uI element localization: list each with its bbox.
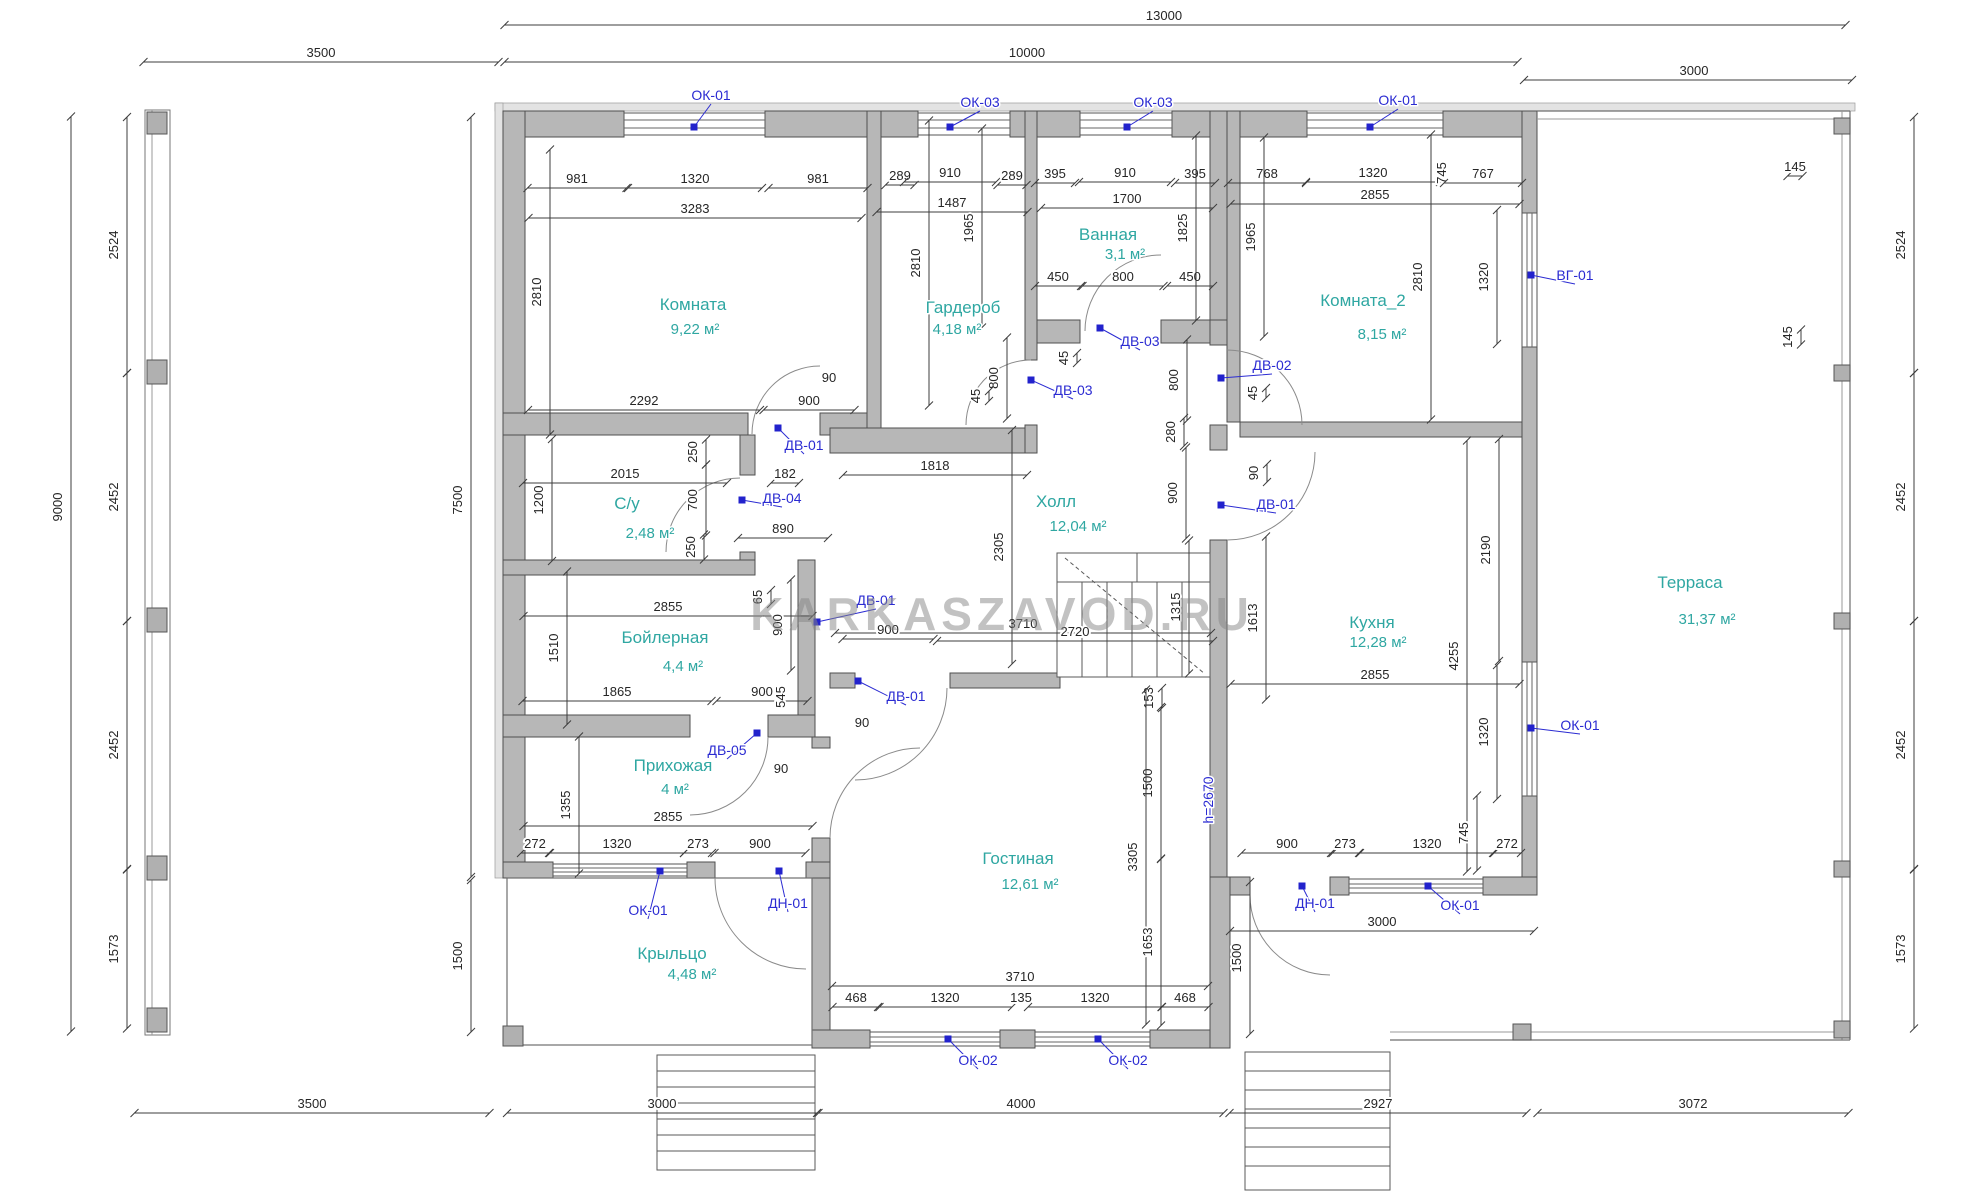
dim-label: 3500 — [298, 1096, 327, 1111]
dim-label: 450 — [1179, 269, 1201, 284]
dim-label: 2927 — [1364, 1096, 1393, 1111]
room-label-Гостиная: Гостиная — [982, 849, 1053, 868]
room-area: 3,1 м² — [1105, 246, 1145, 263]
dim-label: 2452 — [106, 483, 121, 512]
dim-label: 13000 — [1146, 8, 1182, 23]
marker-ДВ-01: ДВ-01 — [784, 437, 823, 453]
terrace-steps — [1245, 1052, 1390, 1190]
dim-label: 3072 — [1679, 1096, 1708, 1111]
window-ok02-1 — [870, 1032, 1000, 1046]
dim-label: 272 — [1496, 836, 1518, 851]
dim-label: 1320 — [1081, 990, 1110, 1005]
dim-label: 1965 — [1243, 223, 1258, 252]
dim-label: 3000 — [648, 1096, 677, 1111]
dim-label: 1500 — [1140, 769, 1155, 798]
dim-label: 90 — [822, 370, 836, 385]
windows — [553, 113, 1537, 1046]
window-ok01-kitchen-bottom — [1349, 879, 1483, 893]
dim-label: 145 — [1780, 326, 1795, 348]
dim-label: 90 — [774, 761, 788, 776]
watermark: KARKASZAVOD.RU — [750, 588, 1254, 640]
window-ok02-2 — [1035, 1032, 1150, 1046]
dim-label: 3000 — [1680, 63, 1709, 78]
dim-label: 2855 — [654, 599, 683, 614]
dim-label: 1200 — [531, 486, 546, 515]
dim-label: 2524 — [106, 231, 121, 260]
dim-label: 90 — [855, 715, 869, 730]
room-label-Холл: Холл — [1036, 492, 1076, 511]
room-area: 12,61 м² — [1001, 876, 1058, 893]
room-label-Гардероб: Гардероб — [926, 298, 1001, 317]
dim-label: 900 — [751, 684, 773, 699]
dim-label: 3283 — [681, 201, 710, 216]
dim-label: 3000 — [1368, 914, 1397, 929]
dim-label: 135 — [1010, 990, 1032, 1005]
room-label-Комната_2: Комната_2 — [1320, 291, 1405, 310]
room-label-С/у: С/у — [614, 494, 640, 513]
left-wall-strip — [145, 110, 170, 1035]
dim-label: 1573 — [106, 935, 121, 964]
dim-label: 272 — [524, 836, 546, 851]
dim-label: 45 — [1245, 386, 1260, 400]
dim-label: 1320 — [1476, 263, 1491, 292]
dim-label: 1320 — [1476, 718, 1491, 747]
dim-label: 2305 — [991, 533, 1006, 562]
dim-label: 1320 — [603, 836, 632, 851]
dim-label: 1818 — [921, 458, 950, 473]
dim-label: 45 — [968, 389, 983, 403]
room-label-Комната: Комната — [660, 295, 727, 314]
dim-label: 395 — [1044, 166, 1066, 181]
dim-label: 800 — [1112, 269, 1134, 284]
dim-label: 981 — [807, 171, 829, 186]
dim-label: 3305 — [1125, 843, 1140, 872]
dim-label: 3710 — [1006, 969, 1035, 984]
dim-label: 289 — [1001, 168, 1023, 183]
marker-ДН-01: ДН-01 — [768, 895, 808, 911]
room-label-Кухня: Кухня — [1349, 613, 1395, 632]
dim-label: 2855 — [1361, 667, 1390, 682]
dim-label: 4000 — [1007, 1096, 1036, 1111]
dim-label: 182 — [774, 466, 796, 481]
dim-label: 289 — [889, 168, 911, 183]
dim-label: 1653 — [1140, 928, 1155, 957]
room-area: 4 м² — [661, 781, 689, 798]
dim-label: 2855 — [654, 809, 683, 824]
dim-label: 2810 — [1410, 263, 1425, 292]
dim-label: 3500 — [307, 45, 336, 60]
marker-ОК-02: ОК-02 — [1108, 1052, 1147, 1068]
dim-label: 250 — [685, 441, 700, 463]
dim-label: 900 — [1165, 482, 1180, 504]
room-area: 12,28 м² — [1349, 634, 1406, 651]
dim-label: 800 — [1166, 369, 1181, 391]
dim-label: 468 — [845, 990, 867, 1005]
marker-ОК-01: ОК-01 — [1440, 897, 1479, 913]
dim-label: 1320 — [1359, 165, 1388, 180]
dim-label: 273 — [687, 836, 709, 851]
marker-ОК-02: ОК-02 — [958, 1052, 997, 1068]
window-vg01-right — [1522, 213, 1537, 347]
room-area: 31,37 м² — [1678, 611, 1735, 628]
dim-label: 2190 — [1478, 536, 1493, 565]
dim-label: 910 — [1114, 165, 1136, 180]
dim-label: 1320 — [931, 990, 960, 1005]
room-label-Терраса: Терраса — [1657, 573, 1723, 592]
room-area: 8,15 м² — [1358, 326, 1407, 343]
room-area: 12,04 м² — [1049, 518, 1106, 535]
dim-label: 2452 — [1893, 483, 1908, 512]
window-ok03-top-1 — [918, 113, 1010, 135]
room-area: 4,48 м² — [668, 966, 717, 983]
dim-label: 45 — [1056, 351, 1071, 365]
dim-label: 910 — [939, 165, 961, 180]
dim-label: 900 — [1276, 836, 1298, 851]
floor-plan-page: 1300010000350030009811320981289910289395… — [0, 0, 1987, 1200]
dim-label: 981 — [566, 171, 588, 186]
marker-ДВ-04: ДВ-04 — [762, 490, 801, 506]
dim-label: 1320 — [1413, 836, 1442, 851]
room-label-Крыльцо: Крыльцо — [637, 944, 706, 963]
marker-ДВ-01: ДВ-01 — [1256, 496, 1295, 512]
dim-label: 2292 — [630, 393, 659, 408]
dim-label: 745 — [1456, 822, 1471, 844]
dim-label: 10000 — [1009, 45, 1045, 60]
dim-label: 9000 — [50, 493, 65, 522]
dim-label: 273 — [1334, 836, 1356, 851]
dim-label: 2855 — [1361, 187, 1390, 202]
marker-ДВ-03: ДВ-03 — [1120, 333, 1159, 349]
dim-label: 468 — [1174, 990, 1196, 1005]
dim-label: 1510 — [546, 634, 561, 663]
marker-ДВ-02: ДВ-02 — [1252, 357, 1291, 373]
room-area: 2,48 м² — [626, 525, 675, 542]
dim-label: 700 — [685, 489, 700, 511]
dim-label: 1355 — [558, 791, 573, 820]
dim-label: 4255 — [1446, 642, 1461, 671]
dim-label: 545 — [773, 686, 788, 708]
dim-label: 800 — [986, 367, 1001, 389]
marker-ОК-01: ОК-01 — [1378, 92, 1417, 108]
marker-ДВ-03: ДВ-03 — [1053, 382, 1092, 398]
dimension-labels: 1300010000350030009811320981289910289395… — [50, 8, 1918, 1117]
marker-ДН-01: ДН-01 — [1295, 895, 1335, 911]
dim-label: 90 — [1246, 466, 1261, 480]
marker-ОК-03: ОК-03 — [1133, 94, 1172, 110]
dim-label: 2524 — [1893, 231, 1908, 260]
room-area: 4,4 м² — [663, 658, 703, 675]
marker-ОК-01: ОК-01 — [1560, 717, 1599, 733]
dim-label: 395 — [1184, 166, 1206, 181]
dim-label: 900 — [798, 393, 820, 408]
dim-label: 890 — [772, 521, 794, 536]
dim-label: 1500 — [1229, 944, 1244, 973]
dim-label: 1700 — [1113, 191, 1142, 206]
dim-label: 1865 — [603, 684, 632, 699]
dim-label: 2810 — [529, 278, 544, 307]
dim-label: 2452 — [106, 731, 121, 760]
marker-h=2670: h=2670 — [1200, 776, 1216, 823]
dim-label: 900 — [749, 836, 771, 851]
dim-label: 2015 — [611, 466, 640, 481]
room-area: 9,22 м² — [671, 321, 720, 338]
room-label-Прихожая: Прихожая — [634, 756, 713, 775]
dim-label: 145 — [1784, 159, 1806, 174]
dim-label: 280 — [1163, 421, 1178, 443]
dim-label: 1500 — [450, 942, 465, 971]
room-label-Бойлерная: Бойлерная — [622, 628, 709, 647]
dim-label: 153 — [1141, 687, 1156, 709]
dim-label: 1320 — [681, 171, 710, 186]
dim-label: 2810 — [908, 249, 923, 278]
dim-label: 768 — [1256, 166, 1278, 181]
dim-label: 7500 — [450, 486, 465, 515]
marker-ОК-01: ОК-01 — [628, 902, 667, 918]
dim-label: 1965 — [961, 214, 976, 243]
window-ok01-bottom-left — [553, 864, 687, 876]
dim-label: 1825 — [1175, 214, 1190, 243]
marker-ОК-03: ОК-03 — [960, 94, 999, 110]
dim-label: 250 — [683, 536, 698, 558]
dim-label: 1573 — [1893, 935, 1908, 964]
marker-ВГ-01: ВГ-01 — [1556, 267, 1593, 283]
dim-label: 767 — [1472, 166, 1494, 181]
dim-label: 450 — [1047, 269, 1069, 284]
dim-label: 1487 — [938, 195, 967, 210]
marker-ДВ-05: ДВ-05 — [707, 742, 746, 758]
marker-ДВ-01: ДВ-01 — [886, 688, 925, 704]
room-area: 4,18 м² — [933, 321, 982, 338]
floor-plan-canvas: 1300010000350030009811320981289910289395… — [0, 0, 1987, 1200]
marker-ОК-01: ОК-01 — [691, 87, 730, 103]
dim-label: 2452 — [1893, 731, 1908, 760]
room-label-Ванная: Ванная — [1079, 225, 1137, 244]
